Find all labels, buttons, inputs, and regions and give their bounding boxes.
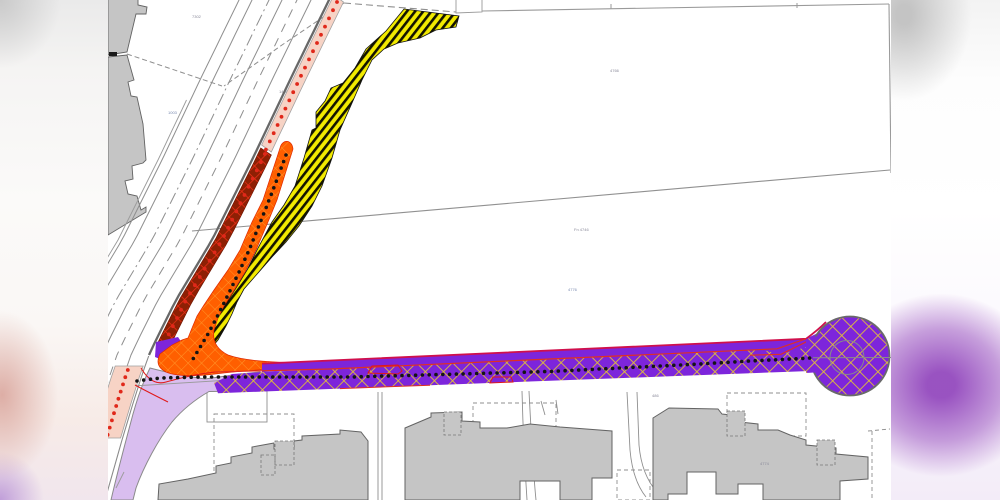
svg-text:4766: 4766 xyxy=(610,68,620,73)
svg-text:7302: 7302 xyxy=(192,14,202,19)
svg-text:486: 486 xyxy=(652,393,659,398)
svg-text:1003: 1003 xyxy=(168,110,178,115)
svg-text:4774: 4774 xyxy=(760,461,770,466)
svg-text:4776: 4776 xyxy=(568,287,578,292)
svg-text:Fn 4746: Fn 4746 xyxy=(574,227,589,232)
